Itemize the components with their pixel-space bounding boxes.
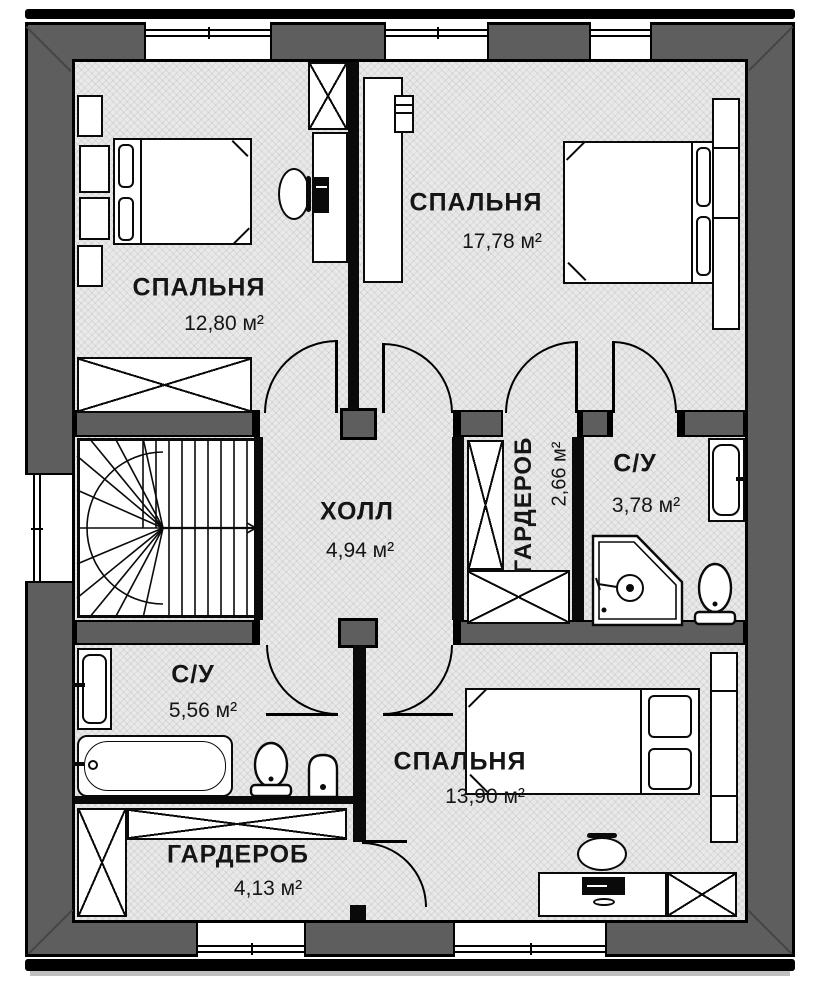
window [25,473,72,583]
wall [75,410,260,437]
room-label: ГАРДЕРОБ [510,437,538,574]
wall [75,620,260,645]
room-area: 17,78 м² [462,230,542,254]
nightstand [79,197,110,240]
window [144,22,272,59]
wall [572,437,584,620]
wall-stub [340,408,377,440]
nightstand [79,145,110,193]
faucet [736,477,746,481]
room-label: СПАЛЬНЯ [394,748,527,777]
wardrobe-cabinet [77,808,127,917]
wall [577,410,613,437]
window [589,22,652,59]
room-label: ХОЛЛ [320,498,394,527]
bed-line [691,143,693,282]
toilet [250,741,292,799]
pillow [696,216,711,276]
shelf-unit [710,652,738,843]
room-area: 12,80 м² [184,312,264,336]
faucet [72,762,84,766]
room-area: 5,56 м² [169,699,237,723]
chair-back [587,833,617,838]
pillow [696,147,711,207]
bathtub-inner [84,741,226,791]
window [196,923,306,957]
door-leaf-bathroom-small [612,341,615,413]
pillow [648,695,692,738]
sink-basin [82,654,107,724]
room-label: СПАЛЬНЯ [133,274,266,303]
room-area: 4,94 м² [326,539,394,563]
pillow [648,748,692,790]
door-leaf-bedroom-1 [335,340,338,413]
wall-stub [350,905,366,920]
wardrobe-cabinet [467,570,570,624]
room-area: 2,66 м² [549,442,572,507]
door-leaf-bathroom-large [266,713,338,716]
wardrobe-cabinet [467,440,504,570]
bed-line [640,690,642,793]
wall [353,645,366,842]
bidet [305,753,341,799]
door-leaf-bedroom-2 [382,343,385,413]
shelf-unit [712,98,740,330]
bathtub-drain [88,760,98,770]
chair-back [306,176,311,212]
wall [453,410,503,437]
dresser [77,95,103,137]
computer-monitor [314,177,329,213]
wardrobe-cabinet [308,62,348,130]
pillow [118,144,134,188]
door-leaf-bedroom-3 [383,713,453,716]
roof-trim-top [25,9,795,19]
wall-stub [338,618,378,648]
printer [394,95,414,133]
door-leaf-wardrobe-large [362,840,407,843]
floor-plan: СПАЛЬНЯ 12,80 м² СПАЛЬНЯ 17,78 м² ХОЛЛ 4… [0,0,821,1000]
room-label: С/У [613,450,657,479]
pillow [118,197,134,241]
window [453,923,607,957]
shower [592,534,684,627]
toilet [694,562,736,626]
wardrobe-cabinet [667,872,737,917]
wall [348,62,359,410]
faucet [73,683,85,687]
window [384,22,489,59]
monitor-stand [593,898,615,906]
staircase-treads [77,438,257,618]
room-area: 13,90 м² [445,785,525,809]
wardrobe-cabinet [127,808,347,840]
wardrobe-cabinet [77,357,252,413]
room-area: 4,13 м² [234,877,302,901]
room-area: 3,78 м² [612,494,680,518]
dresser [77,245,103,287]
bed-line [140,140,142,243]
room-label: ГАРДЕРОБ [167,841,309,870]
chair [577,837,627,871]
roof-trim-bottom [25,959,795,971]
trim-shadow [30,971,790,976]
room-label: СПАЛЬНЯ [410,189,543,218]
room-label: С/У [171,661,215,690]
door-leaf-wardrobe-small [575,341,578,413]
wall [677,410,745,437]
wall [452,437,464,620]
